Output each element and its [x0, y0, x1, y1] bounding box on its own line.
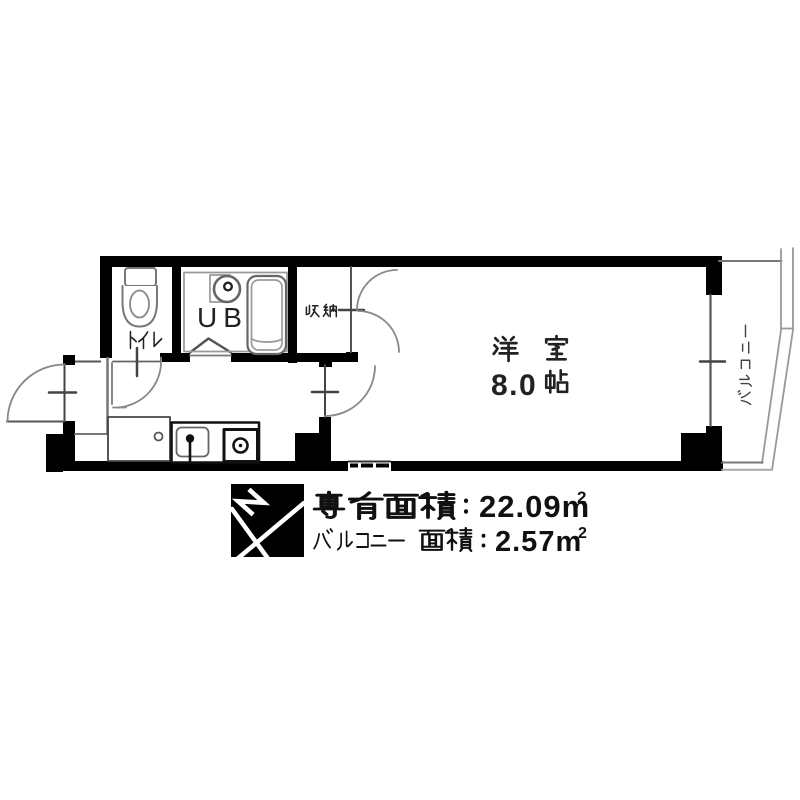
svg-text:8.0: 8.0	[491, 369, 537, 402]
svg-text:22.09m: 22.09m	[479, 489, 590, 524]
svg-text:UB: UB	[197, 302, 248, 333]
svg-text:2.57m: 2.57m	[495, 526, 582, 558]
svg-text:2: 2	[577, 488, 586, 507]
svg-text:2: 2	[578, 525, 587, 542]
